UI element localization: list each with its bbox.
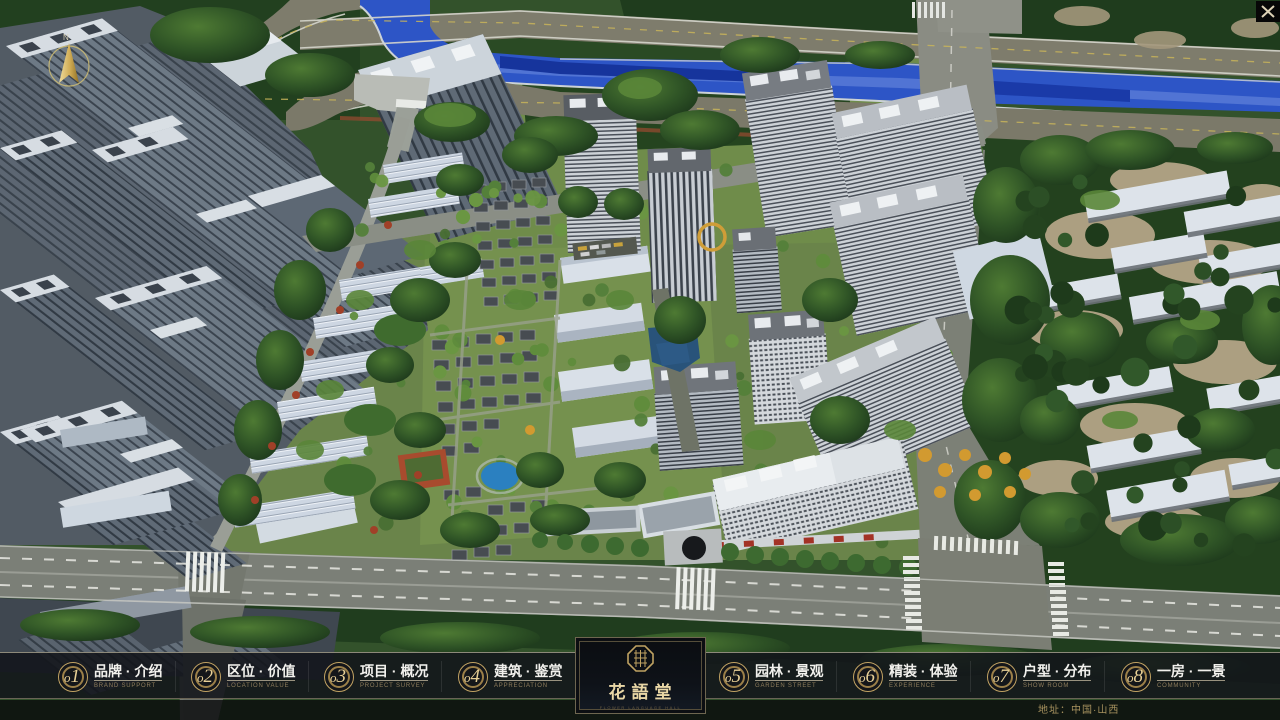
svg-text:N: N	[63, 33, 69, 42]
